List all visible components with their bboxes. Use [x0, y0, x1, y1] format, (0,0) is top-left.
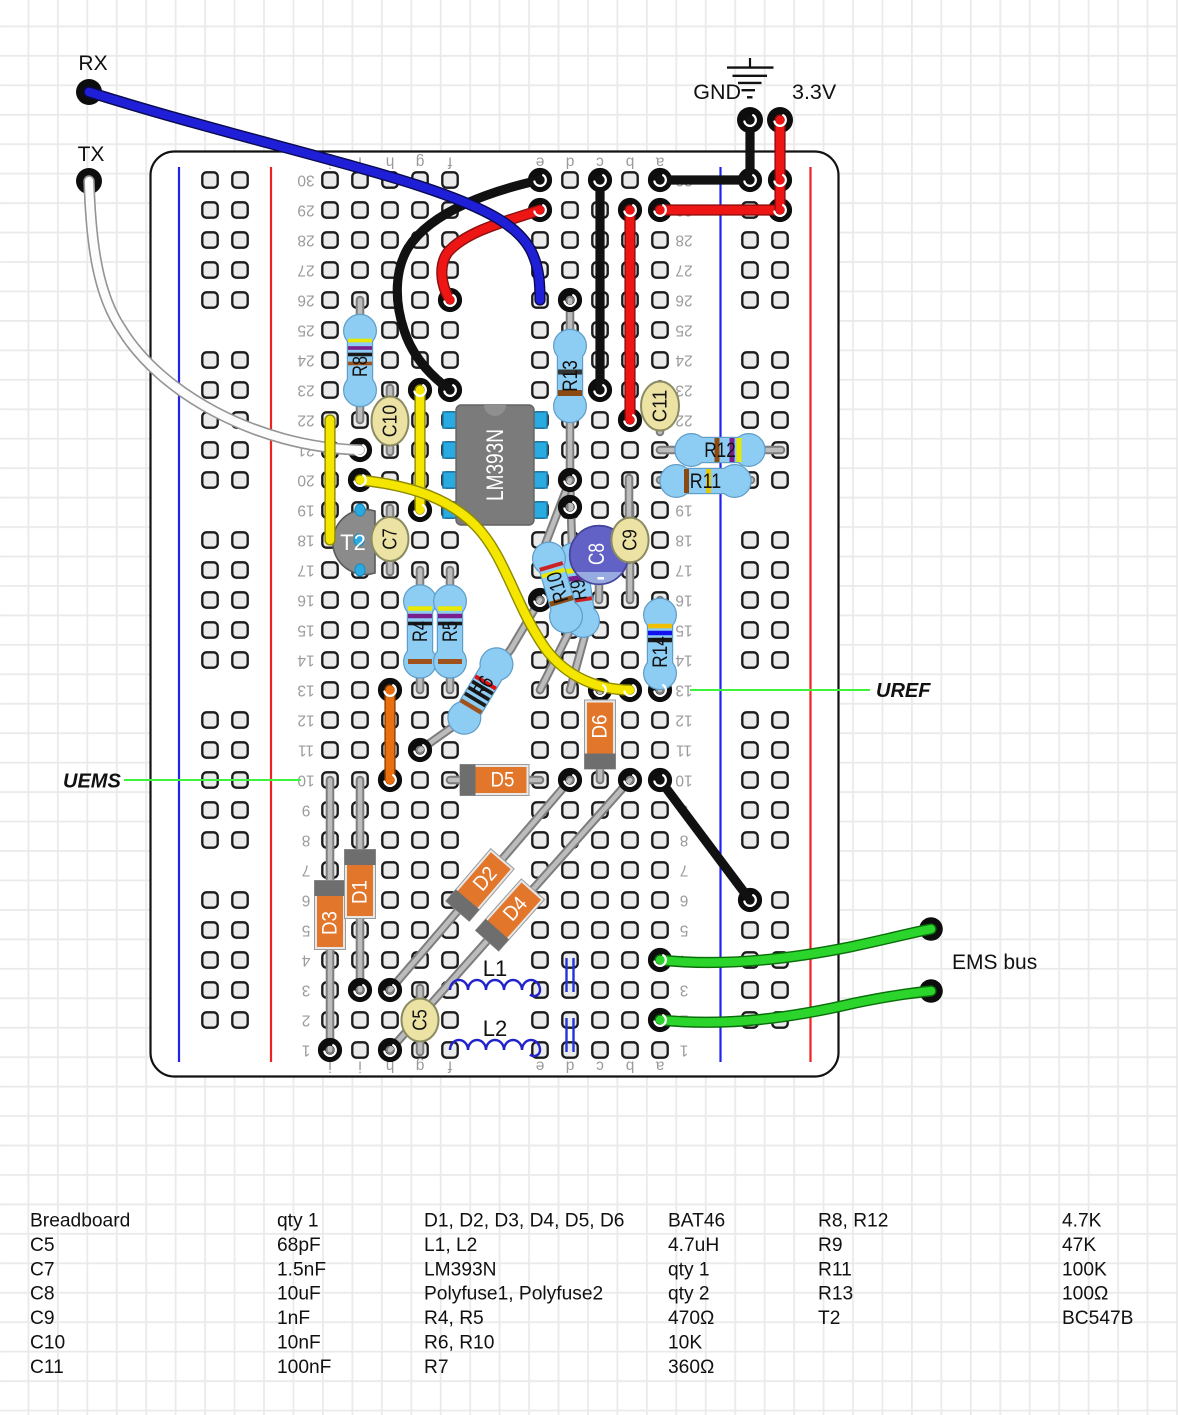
svg-text:T2: T2	[340, 530, 366, 555]
svg-text:BC547B: BC547B	[1062, 1308, 1133, 1329]
svg-text:R6, R10: R6, R10	[424, 1333, 494, 1354]
svg-text:R14: R14	[649, 636, 672, 668]
svg-text:g: g	[416, 1058, 425, 1075]
svg-text:R7: R7	[424, 1357, 449, 1378]
svg-text:Breadboard: Breadboard	[30, 1211, 130, 1232]
svg-text:f: f	[447, 1058, 452, 1075]
svg-text:28: 28	[297, 232, 314, 249]
svg-text:L1: L1	[483, 956, 507, 981]
svg-text:28: 28	[675, 232, 692, 249]
svg-text:4: 4	[301, 952, 310, 969]
svg-text:7: 7	[680, 862, 689, 879]
svg-text:C10: C10	[380, 405, 402, 437]
svg-text:24: 24	[297, 352, 315, 369]
svg-text:9: 9	[302, 802, 311, 819]
svg-text:25: 25	[297, 322, 314, 339]
svg-text:3: 3	[302, 982, 311, 999]
svg-text:UREF: UREF	[876, 680, 931, 702]
svg-text:R13: R13	[559, 360, 582, 392]
svg-text:R5: R5	[439, 621, 462, 642]
svg-text:12: 12	[297, 712, 314, 729]
svg-text:R8: R8	[349, 356, 372, 377]
svg-text:C5: C5	[30, 1235, 55, 1256]
svg-text:10: 10	[675, 772, 693, 789]
svg-text:GND: GND	[693, 80, 741, 104]
svg-text:11: 11	[298, 742, 314, 759]
svg-text:47K: 47K	[1062, 1235, 1096, 1256]
svg-text:29: 29	[297, 202, 314, 219]
svg-text:20: 20	[297, 472, 315, 489]
svg-text:1: 1	[302, 1042, 311, 1059]
svg-text:22: 22	[297, 412, 314, 429]
svg-text:26: 26	[297, 292, 314, 309]
svg-text:1: 1	[680, 1042, 689, 1059]
svg-text:R12: R12	[704, 439, 736, 462]
svg-text:Polyfuse1, Polyfuse2: Polyfuse1, Polyfuse2	[424, 1284, 603, 1305]
svg-text:16: 16	[297, 592, 314, 609]
svg-text:d: d	[566, 154, 575, 171]
svg-text:8: 8	[680, 832, 689, 849]
svg-text:b: b	[626, 154, 635, 171]
svg-text:1.5nF: 1.5nF	[277, 1259, 326, 1280]
svg-text:14: 14	[297, 652, 315, 669]
svg-text:R8, R12: R8, R12	[818, 1211, 888, 1232]
svg-text:a: a	[655, 1058, 664, 1075]
svg-text:13: 13	[297, 682, 314, 699]
svg-text:C8: C8	[30, 1284, 55, 1305]
svg-text:C7: C7	[30, 1259, 55, 1280]
svg-text:D6: D6	[589, 715, 612, 739]
svg-text:i: i	[358, 1058, 361, 1075]
svg-text:470Ω: 470Ω	[668, 1308, 714, 1329]
svg-text:10uF: 10uF	[277, 1284, 321, 1305]
svg-text:C11: C11	[650, 390, 672, 422]
svg-text:h: h	[386, 154, 395, 171]
svg-text:16: 16	[675, 592, 692, 609]
svg-text:R4, R5: R4, R5	[424, 1308, 484, 1329]
svg-text:RX: RX	[78, 52, 107, 75]
svg-text:7: 7	[302, 862, 311, 879]
svg-text:TX: TX	[78, 143, 105, 166]
svg-text:e: e	[536, 1058, 545, 1075]
svg-text:100K: 100K	[1062, 1259, 1107, 1280]
svg-text:C5: C5	[410, 1009, 432, 1031]
svg-text:15: 15	[297, 622, 314, 639]
svg-text:D3: D3	[319, 911, 342, 935]
svg-text:T2: T2	[818, 1308, 840, 1329]
svg-text:5: 5	[302, 922, 311, 939]
svg-text:LM393N: LM393N	[424, 1259, 497, 1280]
svg-text:6: 6	[302, 892, 311, 909]
svg-text:C9: C9	[620, 529, 642, 551]
svg-text:L1, L2: L1, L2	[424, 1235, 477, 1256]
svg-text:C8: C8	[584, 543, 609, 565]
svg-text:R11: R11	[690, 470, 722, 493]
svg-text:100nF: 100nF	[277, 1357, 331, 1378]
svg-text:27: 27	[675, 262, 692, 279]
svg-text:4.7uH: 4.7uH	[668, 1235, 719, 1256]
svg-text:100Ω: 100Ω	[1062, 1284, 1108, 1305]
svg-text:25: 25	[675, 322, 692, 339]
svg-text:18: 18	[297, 532, 314, 549]
svg-text:3.3V: 3.3V	[792, 80, 837, 104]
svg-text:17: 17	[675, 562, 692, 579]
svg-text:qty 1: qty 1	[668, 1259, 710, 1280]
svg-text:12: 12	[675, 712, 692, 729]
svg-text:C10: C10	[30, 1333, 65, 1354]
svg-text:18: 18	[675, 532, 692, 549]
svg-text:27: 27	[297, 262, 314, 279]
svg-text:L2: L2	[483, 1016, 507, 1041]
svg-text:g: g	[416, 154, 425, 171]
svg-text:1nF: 1nF	[277, 1308, 310, 1329]
svg-text:15: 15	[675, 622, 692, 639]
svg-text:8: 8	[302, 832, 311, 849]
svg-text:f: f	[447, 154, 452, 171]
svg-text:11: 11	[676, 742, 692, 759]
svg-text:19: 19	[675, 502, 692, 519]
svg-text:14: 14	[675, 652, 693, 669]
svg-text:b: b	[626, 1058, 635, 1075]
svg-text:C11: C11	[30, 1357, 64, 1378]
svg-text:24: 24	[675, 352, 693, 369]
svg-text:10nF: 10nF	[277, 1333, 321, 1354]
svg-text:BAT46: BAT46	[668, 1211, 725, 1232]
svg-text:D5: D5	[491, 769, 515, 792]
svg-text:6: 6	[680, 892, 689, 909]
svg-text:C9: C9	[30, 1308, 55, 1329]
svg-text:c: c	[596, 1058, 604, 1075]
svg-text:qty 2: qty 2	[668, 1284, 710, 1305]
svg-text:R9: R9	[818, 1235, 843, 1256]
svg-text:UEMS: UEMS	[63, 771, 121, 793]
svg-text:5: 5	[680, 922, 689, 939]
svg-text:D1, D2, D3, D4, D5, D6: D1, D2, D3, D4, D5, D6	[424, 1211, 624, 1232]
svg-text:10K: 10K	[668, 1333, 702, 1354]
svg-text:4.7K: 4.7K	[1062, 1211, 1102, 1232]
svg-text:30: 30	[297, 172, 315, 189]
svg-text:23: 23	[297, 382, 314, 399]
svg-text:17: 17	[297, 562, 314, 579]
svg-text:R4: R4	[409, 621, 432, 642]
svg-text:LM393N: LM393N	[482, 429, 509, 501]
svg-text:D1: D1	[349, 880, 372, 904]
svg-text:EMS bus: EMS bus	[952, 951, 1037, 974]
svg-text:2: 2	[302, 1012, 311, 1029]
svg-text:360Ω: 360Ω	[668, 1357, 714, 1378]
svg-text:C7: C7	[380, 528, 402, 550]
svg-text:26: 26	[675, 292, 692, 309]
svg-text:3: 3	[680, 982, 689, 999]
svg-text:R13: R13	[818, 1284, 853, 1305]
svg-text:qty 1: qty 1	[277, 1211, 319, 1232]
svg-text:d: d	[566, 1058, 575, 1075]
svg-text:68pF: 68pF	[277, 1235, 321, 1256]
svg-text:19: 19	[297, 502, 314, 519]
svg-text:R11: R11	[818, 1259, 852, 1280]
